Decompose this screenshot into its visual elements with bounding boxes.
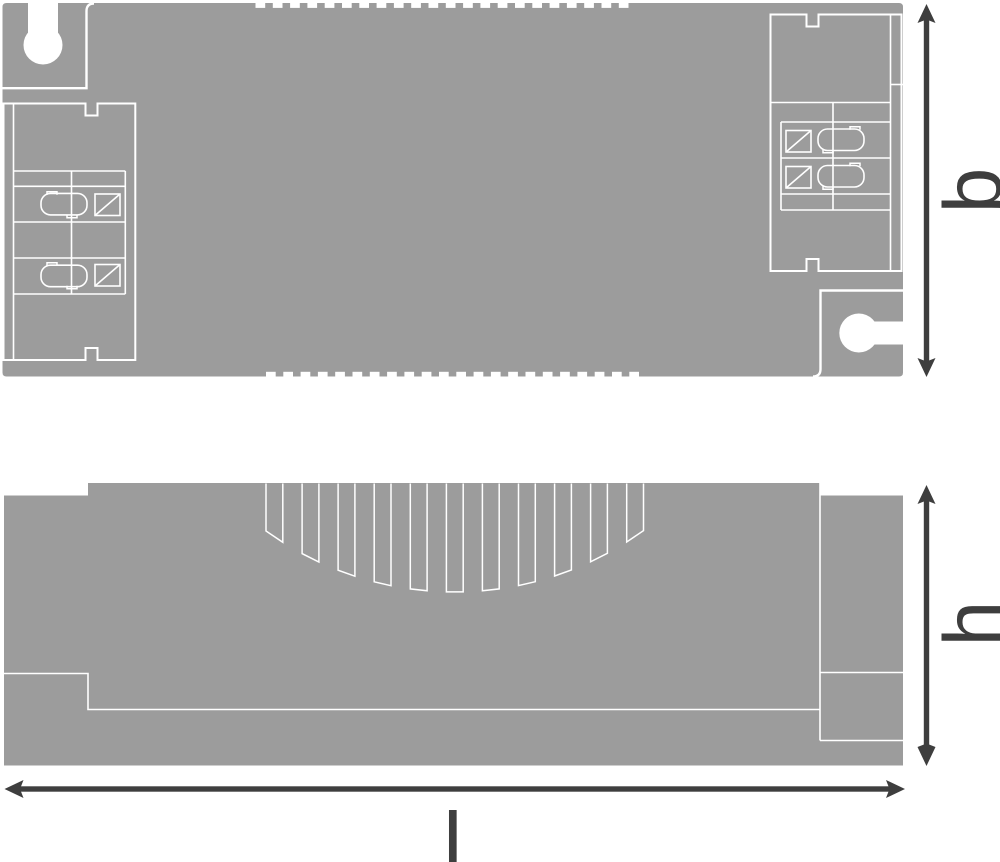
svg-text:l: l [443,795,462,862]
svg-text:h: h [928,601,1000,647]
svg-text:b: b [928,168,1000,214]
